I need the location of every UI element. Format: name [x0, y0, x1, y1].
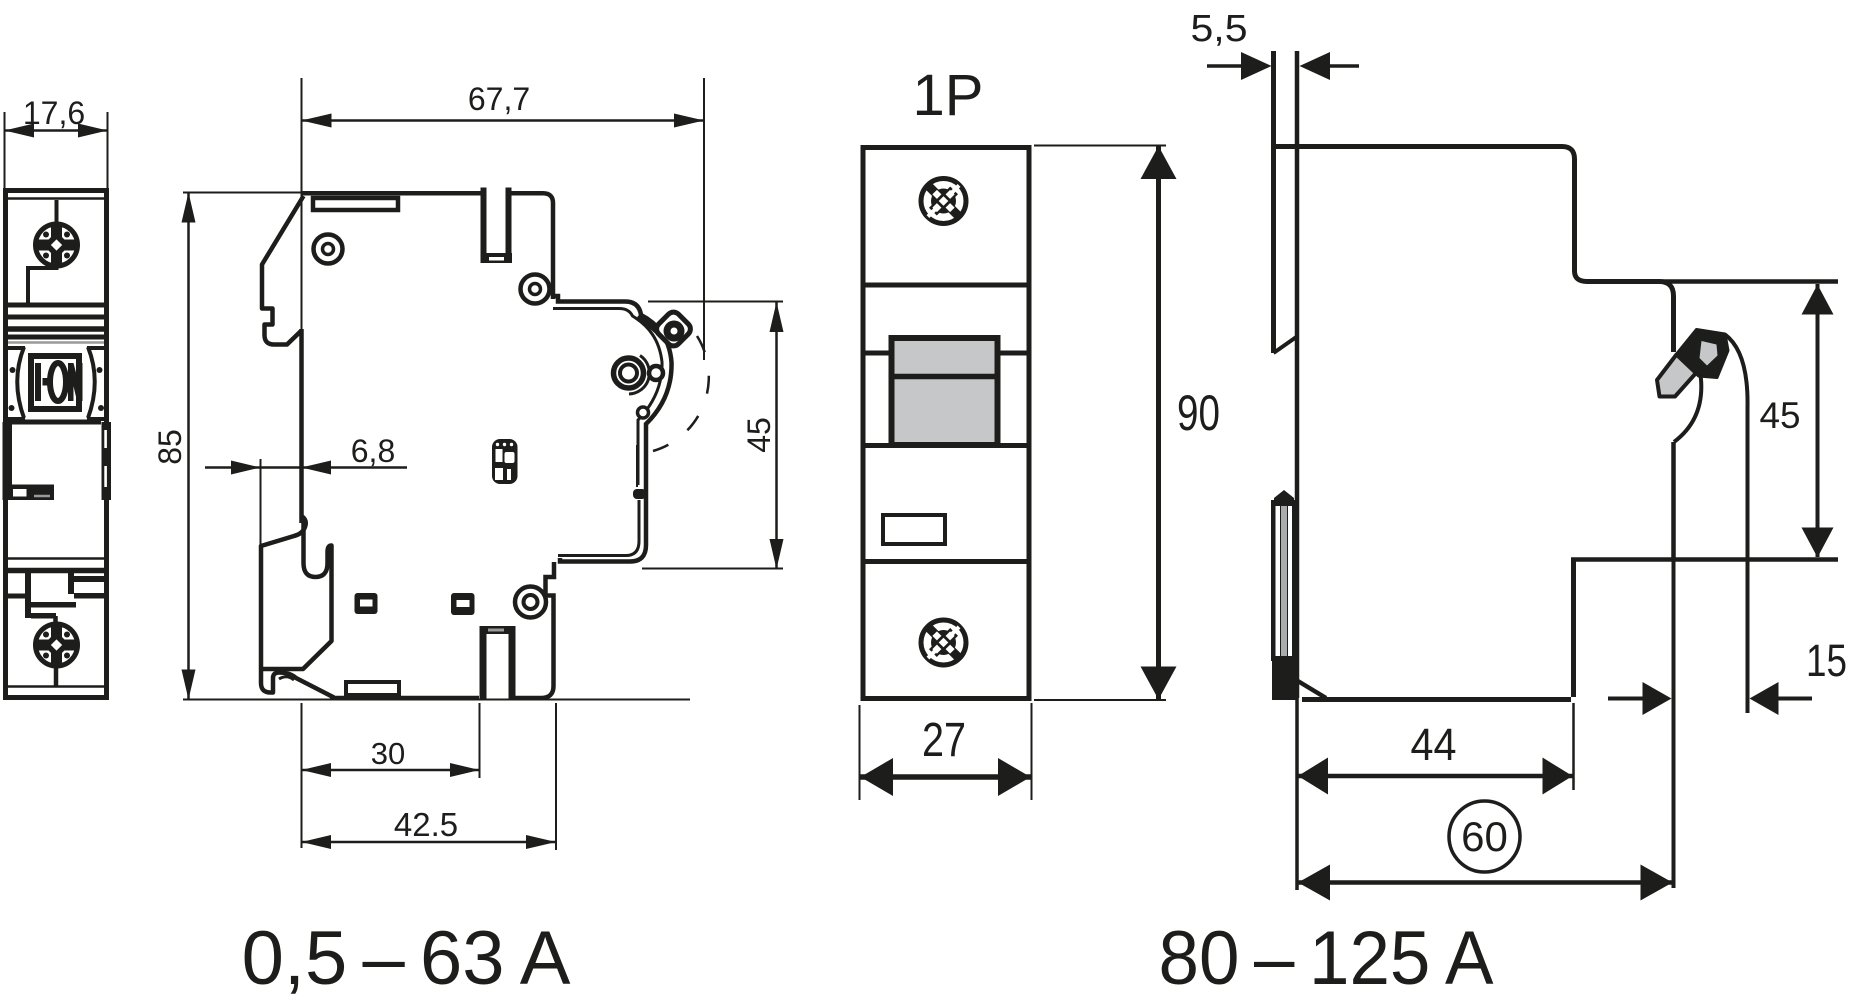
svg-text:90: 90 [1177, 385, 1220, 441]
svg-text:45: 45 [741, 417, 777, 453]
svg-text:42.5: 42.5 [394, 806, 458, 843]
svg-text:30: 30 [371, 736, 405, 771]
svg-text:1P: 1P [913, 63, 984, 128]
svg-text:80 – 125 A: 80 – 125 A [1159, 916, 1494, 998]
svg-text:67,7: 67,7 [468, 81, 530, 117]
svg-text:5,5: 5,5 [1191, 8, 1248, 50]
svg-text:44: 44 [1411, 719, 1457, 770]
svg-text:6,8: 6,8 [351, 433, 395, 469]
svg-text:27: 27 [922, 714, 966, 767]
svg-text:15: 15 [1806, 635, 1847, 686]
svg-text:45: 45 [1760, 395, 1801, 436]
svg-text:60: 60 [1461, 813, 1508, 860]
svg-text:0,5 – 63 A: 0,5 – 63 A [242, 916, 571, 998]
svg-text:85: 85 [152, 429, 188, 465]
